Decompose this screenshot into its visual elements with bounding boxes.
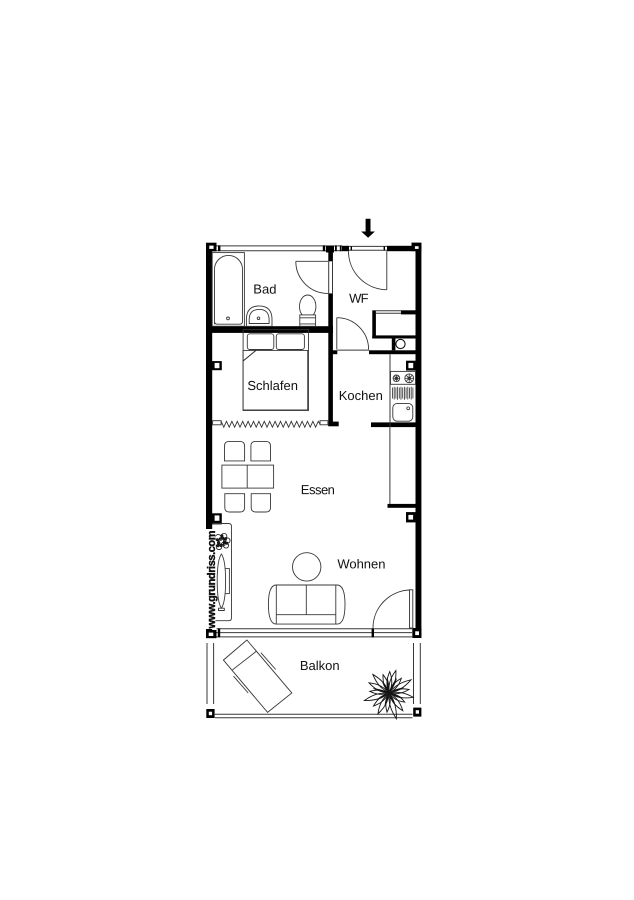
svg-text:www.grundriss.com: www.grundriss.com xyxy=(206,530,218,629)
svg-text:Bad: Bad xyxy=(253,282,276,297)
svg-text:Schlafen: Schlafen xyxy=(247,378,298,393)
svg-text:Balkon: Balkon xyxy=(300,658,340,673)
svg-text:WF: WF xyxy=(349,291,369,306)
svg-text:Wohnen: Wohnen xyxy=(337,556,385,571)
svg-text:Essen: Essen xyxy=(301,482,335,497)
svg-text:Kochen: Kochen xyxy=(339,388,383,403)
